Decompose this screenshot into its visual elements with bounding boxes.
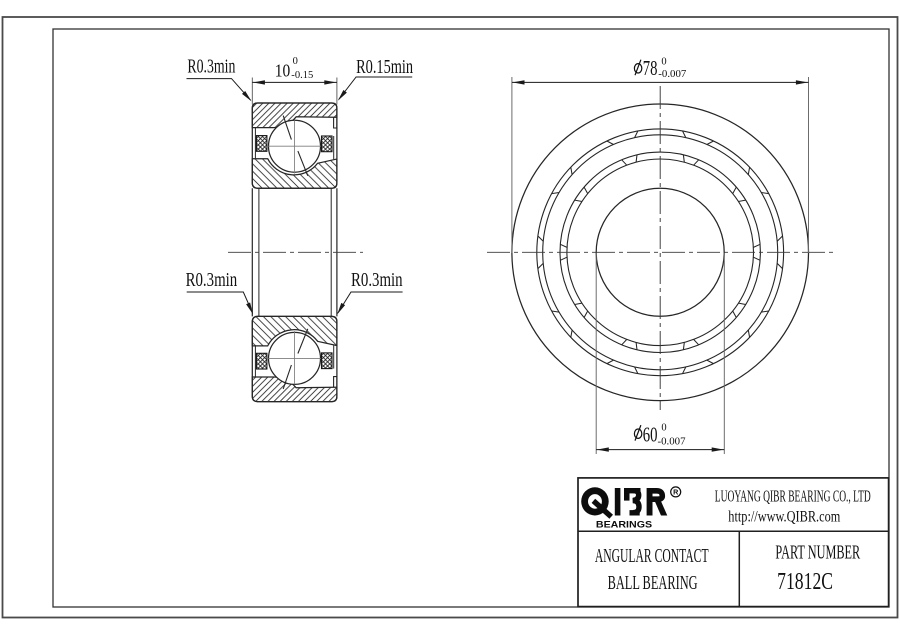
svg-text:0: 0 <box>293 56 298 67</box>
svg-text:R0.3min: R0.3min <box>186 269 238 291</box>
svg-text:LUOYANG QIBR BEARING CO., LTD: LUOYANG QIBR BEARING CO., LTD <box>715 487 871 506</box>
svg-text:R0.15min: R0.15min <box>356 56 413 78</box>
svg-text:71812C: 71812C <box>777 568 833 595</box>
svg-text:-0.007: -0.007 <box>658 437 686 448</box>
svg-text:0: 0 <box>661 423 666 434</box>
svg-text:78: 78 <box>643 56 658 80</box>
svg-text:0: 0 <box>661 56 666 67</box>
svg-text:10: 10 <box>275 60 291 80</box>
svg-text:R0.3min: R0.3min <box>351 269 403 291</box>
svg-text:http://www.QIBR.com: http://www.QIBR.com <box>728 509 840 526</box>
svg-text:-0.007: -0.007 <box>658 69 686 80</box>
svg-text:BALL BEARING: BALL BEARING <box>608 572 698 594</box>
svg-text:60: 60 <box>643 423 658 447</box>
svg-text:BEARINGS: BEARINGS <box>596 519 652 529</box>
svg-text:-0.15: -0.15 <box>291 70 313 81</box>
svg-text:ANGULAR CONTACT: ANGULAR CONTACT <box>595 545 709 567</box>
svg-text:R: R <box>673 488 679 497</box>
svg-text:R0.3min: R0.3min <box>187 56 235 78</box>
svg-text:PART NUMBER: PART NUMBER <box>775 541 860 563</box>
